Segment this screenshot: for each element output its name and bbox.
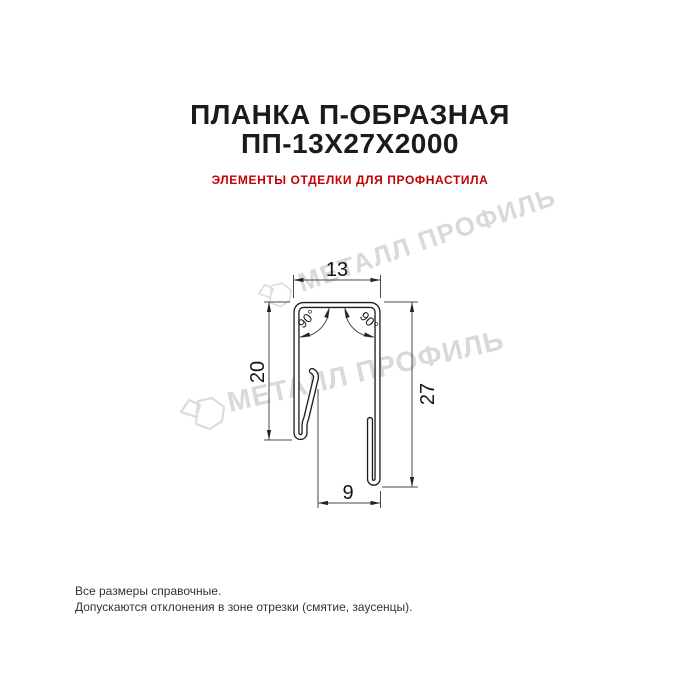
dimension-right-height: 27 [382, 302, 439, 487]
metall-profil-logo-icon [181, 398, 224, 429]
dim-label-27: 27 [417, 383, 439, 405]
dim-label-20: 20 [247, 361, 269, 383]
metall-profil-logo-icon [259, 283, 291, 306]
footer-notes: Все размеры справочные. Допускаются откл… [75, 584, 412, 615]
page: ПЛАНКА П-ОБРАЗНАЯ ПП-13Х27Х2000 ЭЛЕМЕНТЫ… [0, 0, 700, 700]
dimension-left-height: 20 [247, 302, 292, 440]
dim-label-13: 13 [326, 259, 348, 281]
dim-label-9: 9 [342, 482, 353, 504]
footer-note-2: Допускаются отклонения в зоне отрезки (с… [75, 600, 412, 616]
angle-top-left: 90° [295, 307, 331, 339]
footer-note-1: Все размеры справочные. [75, 584, 412, 600]
